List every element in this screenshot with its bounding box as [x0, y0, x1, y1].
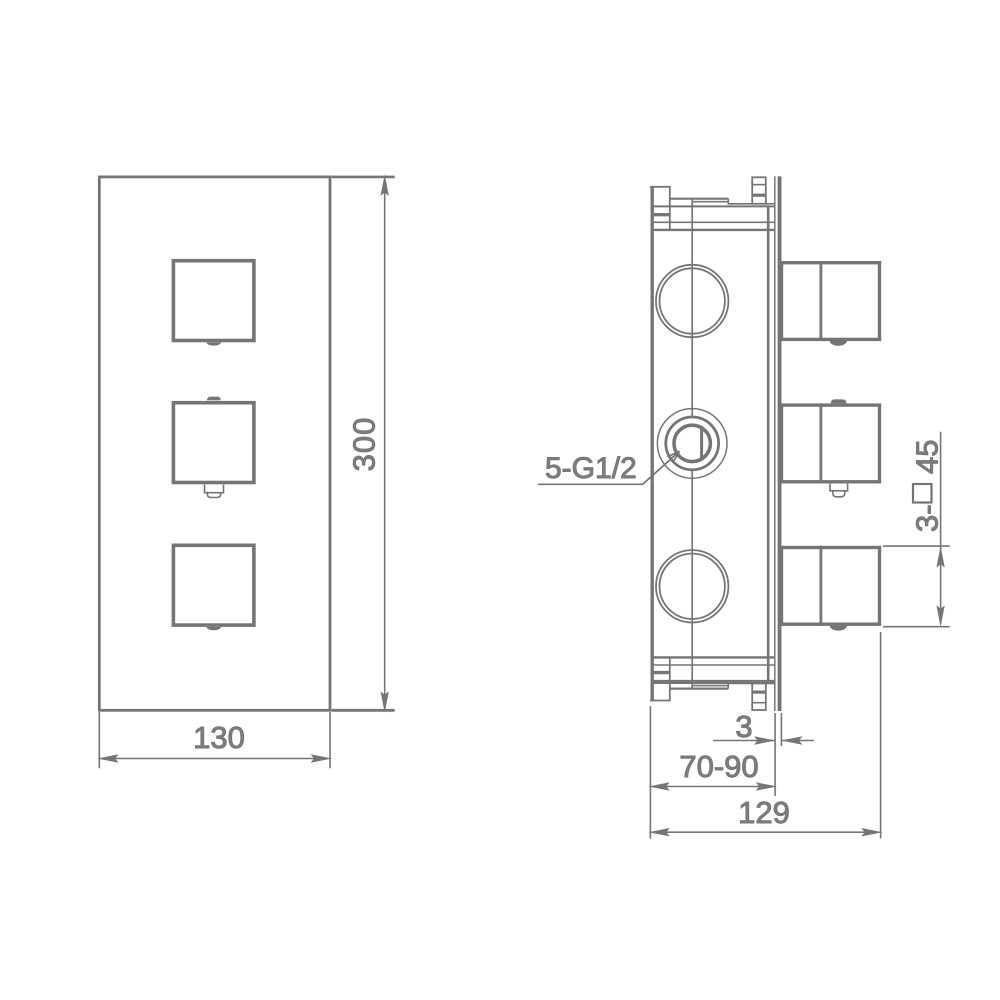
svg-text:3: 3	[735, 709, 752, 744]
svg-text:3-: 3-	[910, 504, 945, 532]
svg-text:70-90: 70-90	[679, 749, 758, 784]
svg-text:45: 45	[910, 440, 945, 474]
svg-text:130: 130	[193, 720, 245, 755]
svg-text:129: 129	[738, 795, 790, 830]
svg-text:300: 300	[347, 417, 382, 472]
svg-text:5-G1/2: 5-G1/2	[545, 452, 637, 485]
